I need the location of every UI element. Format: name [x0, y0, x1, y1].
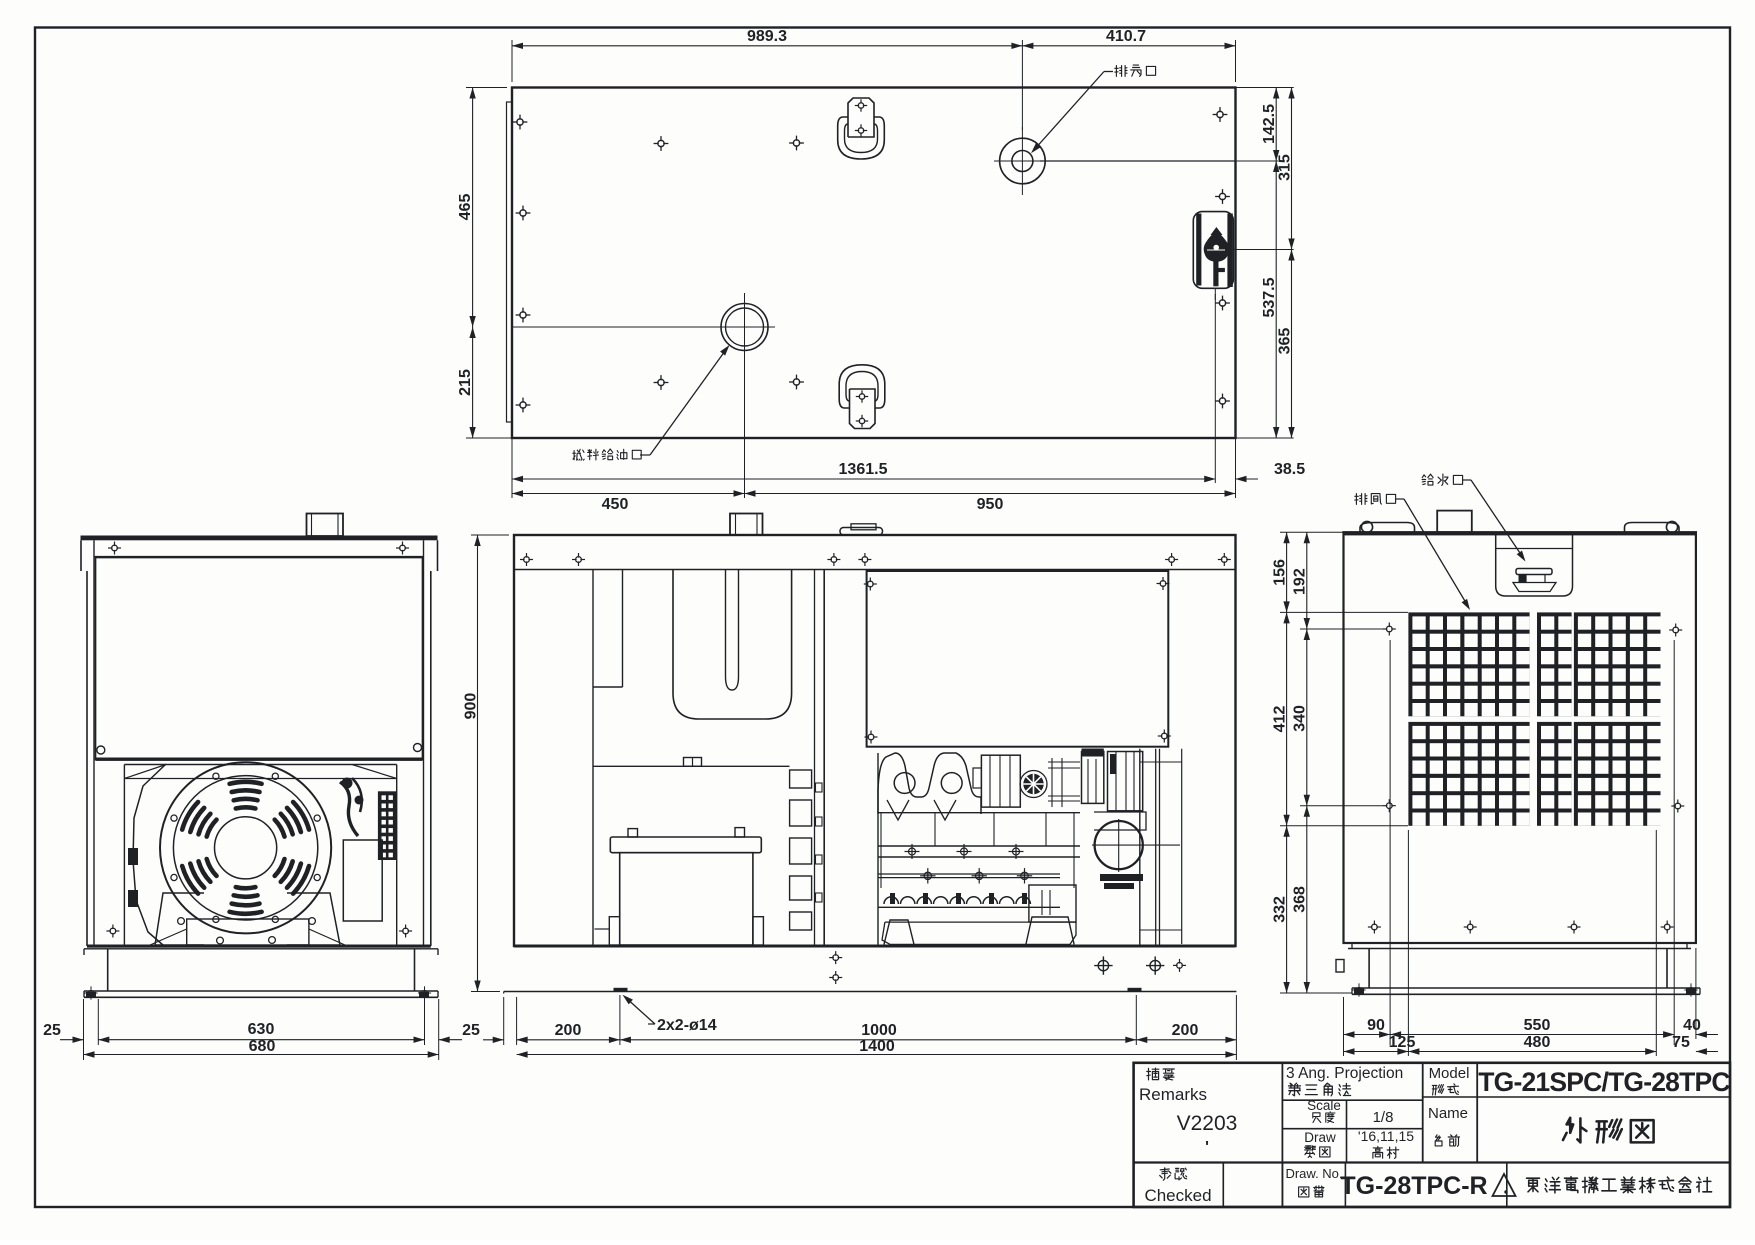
svg-text:V2203: V2203	[1177, 1112, 1238, 1135]
svg-text:TG-21SPC/TG-28TPC: TG-21SPC/TG-28TPC	[1478, 1067, 1730, 1097]
svg-text:142.5: 142.5	[1261, 104, 1278, 144]
svg-text:75: 75	[1672, 1034, 1690, 1051]
svg-text:950: 950	[977, 496, 1004, 513]
svg-text:537.5: 537.5	[1261, 277, 1278, 317]
svg-text:': '	[1205, 1139, 1209, 1156]
svg-text:TG-28TPC-R: TG-28TPC-R	[1340, 1172, 1487, 1200]
svg-text:680: 680	[249, 1038, 276, 1055]
svg-text:480: 480	[1524, 1034, 1551, 1051]
svg-text:989.3: 989.3	[747, 28, 787, 45]
svg-text:1/8: 1/8	[1373, 1109, 1394, 1126]
svg-text:25: 25	[43, 1022, 61, 1039]
svg-text:1000: 1000	[861, 1022, 897, 1039]
svg-text:Remarks: Remarks	[1139, 1085, 1207, 1104]
svg-text:'16,11,15: '16,11,15	[1358, 1128, 1414, 1144]
svg-text:365: 365	[1276, 328, 1293, 355]
svg-text:Scale: Scale	[1307, 1098, 1341, 1113]
svg-text:200: 200	[555, 1022, 582, 1039]
svg-text:332: 332	[1271, 896, 1288, 923]
svg-text:40: 40	[1683, 1017, 1701, 1034]
svg-text:25: 25	[462, 1022, 480, 1039]
svg-text:368: 368	[1292, 886, 1309, 913]
svg-text:Draw. No.: Draw. No.	[1285, 1166, 1342, 1181]
svg-text:465: 465	[457, 194, 474, 221]
svg-text:450: 450	[602, 496, 629, 513]
svg-text:315: 315	[1276, 154, 1293, 181]
svg-text:90: 90	[1367, 1017, 1385, 1034]
svg-text:156: 156	[1271, 559, 1288, 586]
svg-text:550: 550	[1524, 1017, 1551, 1034]
svg-text:215: 215	[457, 369, 474, 396]
svg-text:2x2-ø14: 2x2-ø14	[657, 1017, 717, 1034]
svg-text:38.5: 38.5	[1274, 461, 1305, 478]
svg-text:200: 200	[1172, 1022, 1199, 1039]
svg-text:Checked: Checked	[1144, 1186, 1211, 1205]
svg-text:410.7: 410.7	[1106, 28, 1146, 45]
svg-text:630: 630	[248, 1021, 275, 1038]
svg-text:1400: 1400	[859, 1038, 895, 1055]
svg-text:412: 412	[1271, 706, 1288, 733]
svg-text:900: 900	[462, 693, 479, 720]
svg-text:Draw: Draw	[1304, 1130, 1336, 1145]
svg-text:1361.5: 1361.5	[839, 461, 888, 478]
svg-text:Model: Model	[1429, 1065, 1470, 1082]
svg-text:340: 340	[1292, 705, 1309, 732]
svg-text:Name: Name	[1428, 1105, 1468, 1122]
svg-text:3 Ang. Projection: 3 Ang. Projection	[1286, 1065, 1403, 1082]
svg-text:192: 192	[1292, 568, 1309, 595]
svg-text:125: 125	[1389, 1034, 1416, 1051]
